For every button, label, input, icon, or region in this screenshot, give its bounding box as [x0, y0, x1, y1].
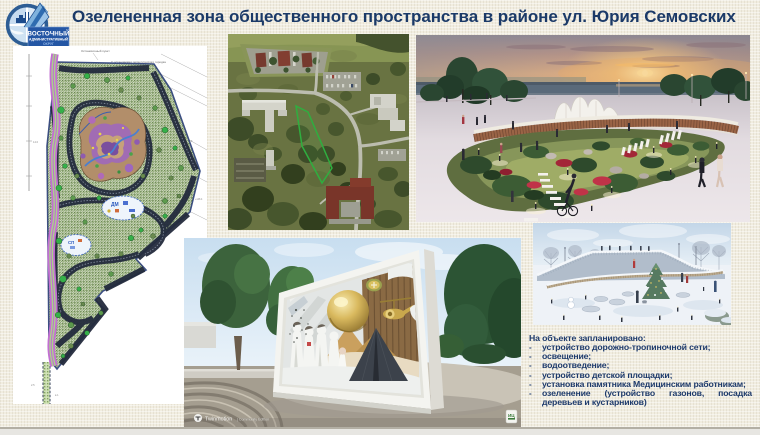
svg-text:ВОСТОЧНЫЙ: ВОСТОЧНЫЙ: [27, 30, 70, 38]
svg-text:14.0: 14.0: [33, 140, 39, 144]
svg-text:Twinmotion: Twinmotion: [205, 417, 232, 423]
svg-text:2.5: 2.5: [31, 383, 35, 387]
svg-text:| Community Edition: | Community Edition: [237, 417, 269, 421]
svg-text:в.1: в.1: [55, 393, 59, 397]
svg-text:Остановочный пункт: Остановочный пункт: [81, 49, 110, 53]
svg-text:СП: СП: [68, 240, 74, 245]
svg-text:+148.4: +148.4: [195, 198, 203, 201]
svg-text:ИЦ: ИЦ: [508, 413, 515, 418]
svg-text:ДМ: ДМ: [111, 202, 119, 208]
